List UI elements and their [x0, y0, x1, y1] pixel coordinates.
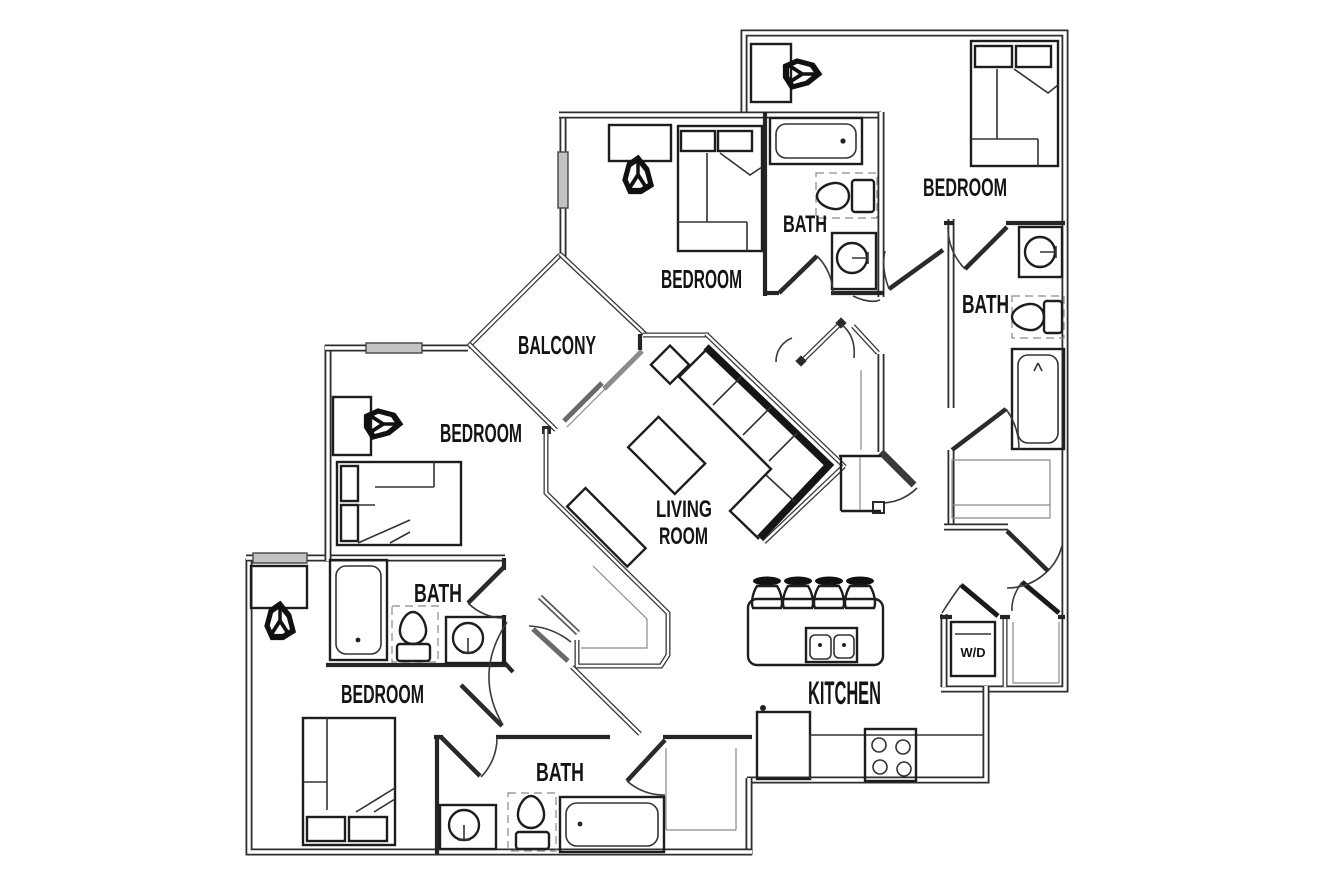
svg-text:BATH: BATH [536, 757, 584, 787]
svg-text:BATH: BATH [414, 578, 462, 608]
svg-text:BATH: BATH [962, 289, 1009, 319]
svg-text:BEDROOM: BEDROOM [661, 264, 742, 294]
svg-text:BATH: BATH [783, 211, 827, 238]
svg-text:BEDROOM: BEDROOM [923, 174, 1007, 202]
svg-text:BALCONY: BALCONY [518, 330, 596, 360]
svg-text:BEDROOM: BEDROOM [440, 418, 522, 448]
svg-text:ROOM: ROOM [659, 523, 708, 550]
svg-text:LIVING: LIVING [656, 496, 712, 523]
svg-text:BEDROOM: BEDROOM [341, 679, 424, 709]
svg-text:KITCHEN: KITCHEN [808, 675, 881, 711]
svg-text:W/D: W/D [961, 645, 986, 660]
